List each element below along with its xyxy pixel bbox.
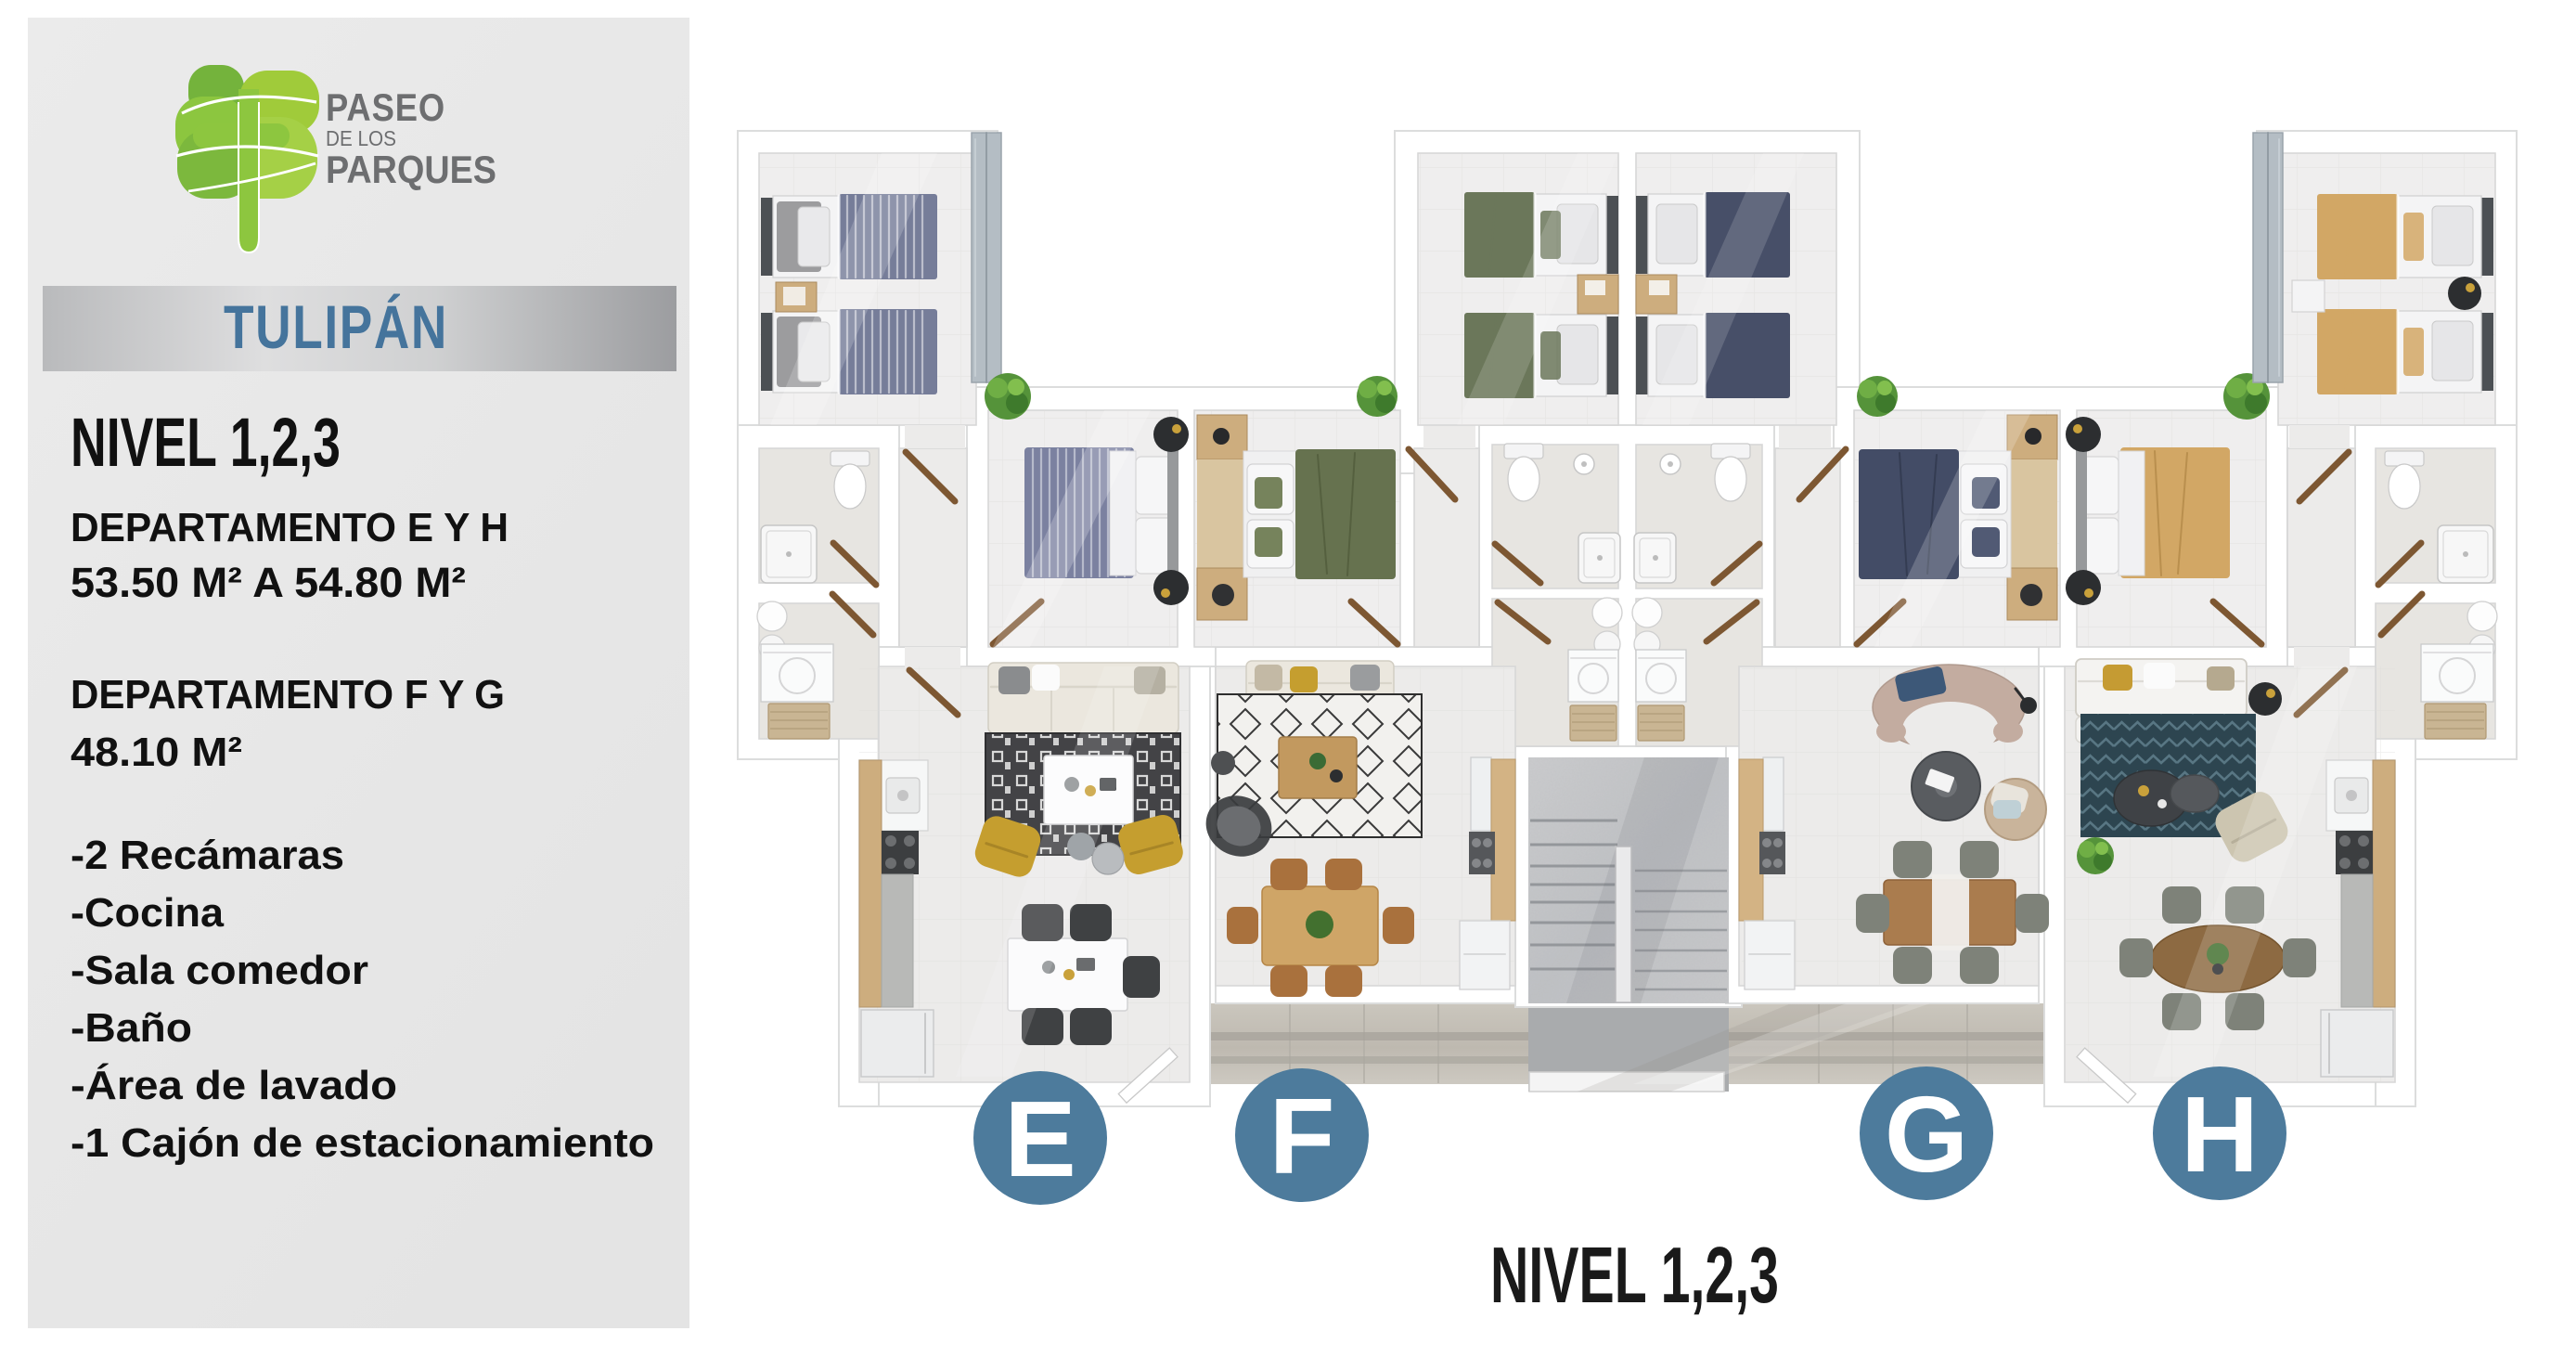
svg-text:F: F <box>1269 1076 1335 1196</box>
svg-text:-1 Cajón de estacionamiento: -1 Cajón de estacionamiento <box>71 1120 654 1166</box>
svg-text:H: H <box>2181 1074 2259 1195</box>
svg-text:E: E <box>1004 1079 1075 1199</box>
svg-text:-Cocina: -Cocina <box>71 890 225 936</box>
svg-text:-Baño: -Baño <box>71 1005 192 1051</box>
svg-text:-Área de lavado: -Área de lavado <box>71 1062 397 1108</box>
svg-text:-2 Recámaras: -2 Recámaras <box>71 833 344 878</box>
svg-text:DEPARTAMENTO E Y H: DEPARTAMENTO E Y H <box>71 505 509 550</box>
svg-text:-Sala comedor: -Sala comedor <box>71 948 368 993</box>
svg-text:53.50 M² A 54.80 M²: 53.50 M² A 54.80 M² <box>71 559 466 606</box>
svg-text:PARQUES: PARQUES <box>326 148 496 191</box>
svg-text:G: G <box>1885 1074 1968 1195</box>
svg-text:NIVEL 1,2,3: NIVEL 1,2,3 <box>71 404 341 481</box>
svg-text:48.10 M²: 48.10 M² <box>71 730 242 775</box>
svg-text:PASEO: PASEO <box>326 85 445 129</box>
svg-text:NIVEL 1,2,3: NIVEL 1,2,3 <box>1490 1232 1779 1320</box>
svg-text:TULIPÁN: TULIPÁN <box>224 292 448 361</box>
svg-text:DEPARTAMENTO F Y G: DEPARTAMENTO F Y G <box>71 672 505 717</box>
